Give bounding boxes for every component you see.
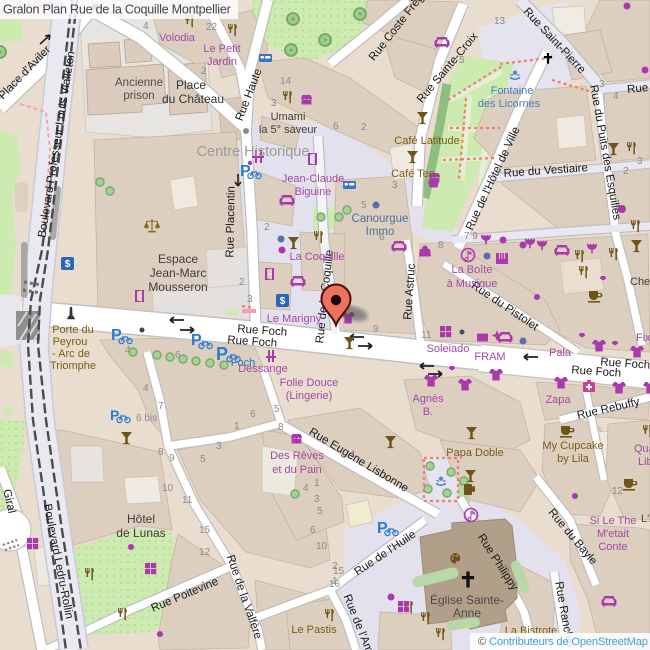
svg-text:P: P	[111, 327, 122, 344]
svg-text:Espace: Espace	[158, 252, 198, 266]
svg-text:3: 3	[216, 441, 222, 452]
svg-text:8: 8	[438, 240, 444, 251]
svg-text:1: 1	[332, 576, 338, 587]
svg-text:13: 13	[494, 16, 506, 27]
svg-text:Jean-Marc: Jean-Marc	[150, 266, 207, 280]
svg-text:2: 2	[201, 66, 207, 77]
svg-text:10: 10	[162, 483, 174, 494]
svg-text:2: 2	[239, 277, 245, 288]
svg-text:Fontaine: Fontaine	[491, 85, 534, 97]
svg-text:7 9: 7 9	[464, 231, 478, 242]
svg-text:Canourgue: Canourgue	[352, 213, 409, 225]
svg-text:10: 10	[316, 541, 328, 552]
svg-text:5: 5	[317, 506, 323, 517]
svg-text:4: 4	[613, 91, 619, 102]
svg-text:22: 22	[206, 22, 218, 33]
svg-text:Café Teo: Café Teo	[391, 168, 435, 180]
svg-text:prison: prison	[123, 90, 154, 102]
svg-text:11: 11	[182, 495, 193, 506]
svg-text:6: 6	[379, 232, 385, 243]
svg-text:La Coquille: La Coquille	[289, 251, 344, 263]
svg-text:3: 3	[271, 98, 277, 109]
svg-text:4: 4	[143, 21, 149, 32]
svg-text:Jean-Claude: Jean-Claude	[282, 173, 344, 185]
svg-text:3: 3	[247, 294, 253, 305]
svg-text:Rue Placentin: Rue Placentin	[224, 186, 237, 258]
svg-text:4: 4	[125, 345, 131, 356]
svg-text:Qua: Qua	[634, 443, 650, 455]
svg-text:Agnès: Agnès	[412, 393, 444, 405]
svg-text:Umami: Umami	[271, 111, 306, 123]
svg-text:(Lingerie): (Lingerie)	[286, 390, 332, 402]
svg-text:3: 3	[637, 156, 643, 167]
svg-text:Place: Place	[176, 78, 206, 92]
svg-text:P: P	[377, 520, 388, 537]
svg-text:P: P	[191, 332, 202, 349]
svg-text:4: 4	[303, 483, 309, 494]
svg-text:Pala: Pala	[549, 347, 572, 359]
svg-text:My Cupcake: My Cupcake	[542, 440, 603, 452]
svg-text:5: 5	[459, 55, 465, 66]
svg-text:© Contributeurs de OpenStreetM: © Contributeurs de OpenStreetMap	[478, 636, 648, 648]
svg-text:Gralon Plan Rue de la Coquille: Gralon Plan Rue de la Coquille Montpelli…	[3, 3, 231, 17]
svg-text:Café Latitude: Café Latitude	[394, 135, 459, 147]
svg-text:Lib: Lib	[638, 456, 650, 468]
svg-text:Conte: Conte	[598, 541, 627, 553]
svg-text:3: 3	[599, 79, 605, 90]
svg-text:Le Marigny: Le Marigny	[267, 313, 322, 325]
svg-text:Dessange: Dessange	[238, 363, 288, 375]
svg-text:5: 5	[274, 404, 280, 415]
svg-text:6: 6	[250, 409, 256, 420]
svg-text:8: 8	[278, 422, 284, 433]
svg-text:Peyrou: Peyrou	[53, 336, 88, 348]
svg-text:La Boîte: La Boîte	[452, 264, 493, 276]
svg-text:Porte du: Porte du	[52, 324, 94, 336]
svg-text:14: 14	[280, 76, 292, 87]
svg-text:7: 7	[158, 401, 164, 412]
svg-text:Zapa: Zapa	[545, 394, 571, 406]
svg-text:des Licornes: des Licornes	[478, 98, 541, 110]
svg-text:Papa Doble: Papa Doble	[446, 447, 504, 459]
svg-text:Mousseron: Mousseron	[148, 280, 207, 294]
svg-text:15: 15	[199, 525, 211, 536]
svg-text:Triomphe: Triomphe	[50, 360, 96, 372]
svg-text:11: 11	[421, 330, 432, 341]
svg-text:6: 6	[333, 121, 339, 132]
svg-text:Si Le The: Si Le The	[590, 515, 637, 527]
svg-text:by Lila: by Lila	[557, 453, 590, 465]
svg-text:du Château: du Château	[162, 92, 224, 106]
svg-text:9: 9	[169, 453, 175, 464]
svg-text:Le Pastis: Le Pastis	[291, 624, 337, 636]
svg-text:et du Pain: et du Pain	[272, 464, 322, 476]
svg-text:Centre Historique: Centre Historique	[197, 144, 310, 160]
svg-text:L'A: L'A	[641, 513, 650, 525]
svg-text:6: 6	[310, 525, 316, 536]
svg-text:2: 2	[361, 122, 367, 133]
svg-text:de Lunas: de Lunas	[116, 526, 165, 540]
svg-text:5: 5	[361, 200, 367, 211]
svg-text:Des Rêves: Des Rêves	[270, 450, 324, 462]
svg-text:1: 1	[234, 421, 240, 432]
svg-text:Folie Douce: Folie Douce	[280, 377, 339, 389]
svg-text:Soleiado: Soleiado	[427, 343, 470, 355]
svg-text:la 5° saveur: la 5° saveur	[259, 124, 318, 136]
svg-text:Le Petit: Le Petit	[203, 43, 240, 55]
svg-text:1: 1	[314, 478, 320, 489]
svg-text:Che: Che	[630, 276, 650, 288]
svg-text:B.: B.	[423, 406, 433, 418]
svg-text:12: 12	[612, 486, 624, 497]
svg-text:Hôtel: Hôtel	[127, 512, 155, 526]
svg-text:P: P	[240, 163, 251, 180]
svg-text:Fix: Fix	[636, 332, 650, 344]
svg-text:Jardin: Jardin	[207, 56, 237, 68]
svg-text:à Musique: à Musique	[447, 278, 498, 290]
svg-text:12: 12	[199, 547, 211, 558]
svg-text:5: 5	[200, 454, 206, 465]
svg-text:Anne: Anne	[453, 606, 481, 620]
svg-text:6 bis: 6 bis	[136, 413, 157, 424]
svg-text:Biguine: Biguine	[295, 186, 332, 198]
svg-text:3: 3	[392, 180, 398, 191]
svg-text:M'etait: M'etait	[597, 528, 629, 540]
svg-text:2: 2	[264, 222, 270, 233]
svg-text:4: 4	[143, 383, 149, 394]
svg-text:Ancienne: Ancienne	[115, 77, 163, 89]
svg-text:P: P	[110, 407, 119, 423]
svg-text:Volodia: Volodia	[159, 32, 196, 44]
svg-text:2: 2	[332, 561, 338, 572]
svg-text:8: 8	[158, 447, 164, 458]
svg-text:3: 3	[314, 494, 320, 505]
svg-text:9: 9	[373, 324, 379, 335]
svg-text:2: 2	[623, 166, 629, 177]
svg-text:6: 6	[175, 350, 181, 361]
svg-text:Église Sainte-: Église Sainte-	[430, 592, 504, 607]
svg-text:P: P	[216, 344, 228, 364]
svg-text:- Arc de: - Arc de	[52, 348, 90, 360]
svg-text:Rue: Rue	[627, 82, 649, 96]
svg-text:FRAM: FRAM	[474, 351, 505, 363]
